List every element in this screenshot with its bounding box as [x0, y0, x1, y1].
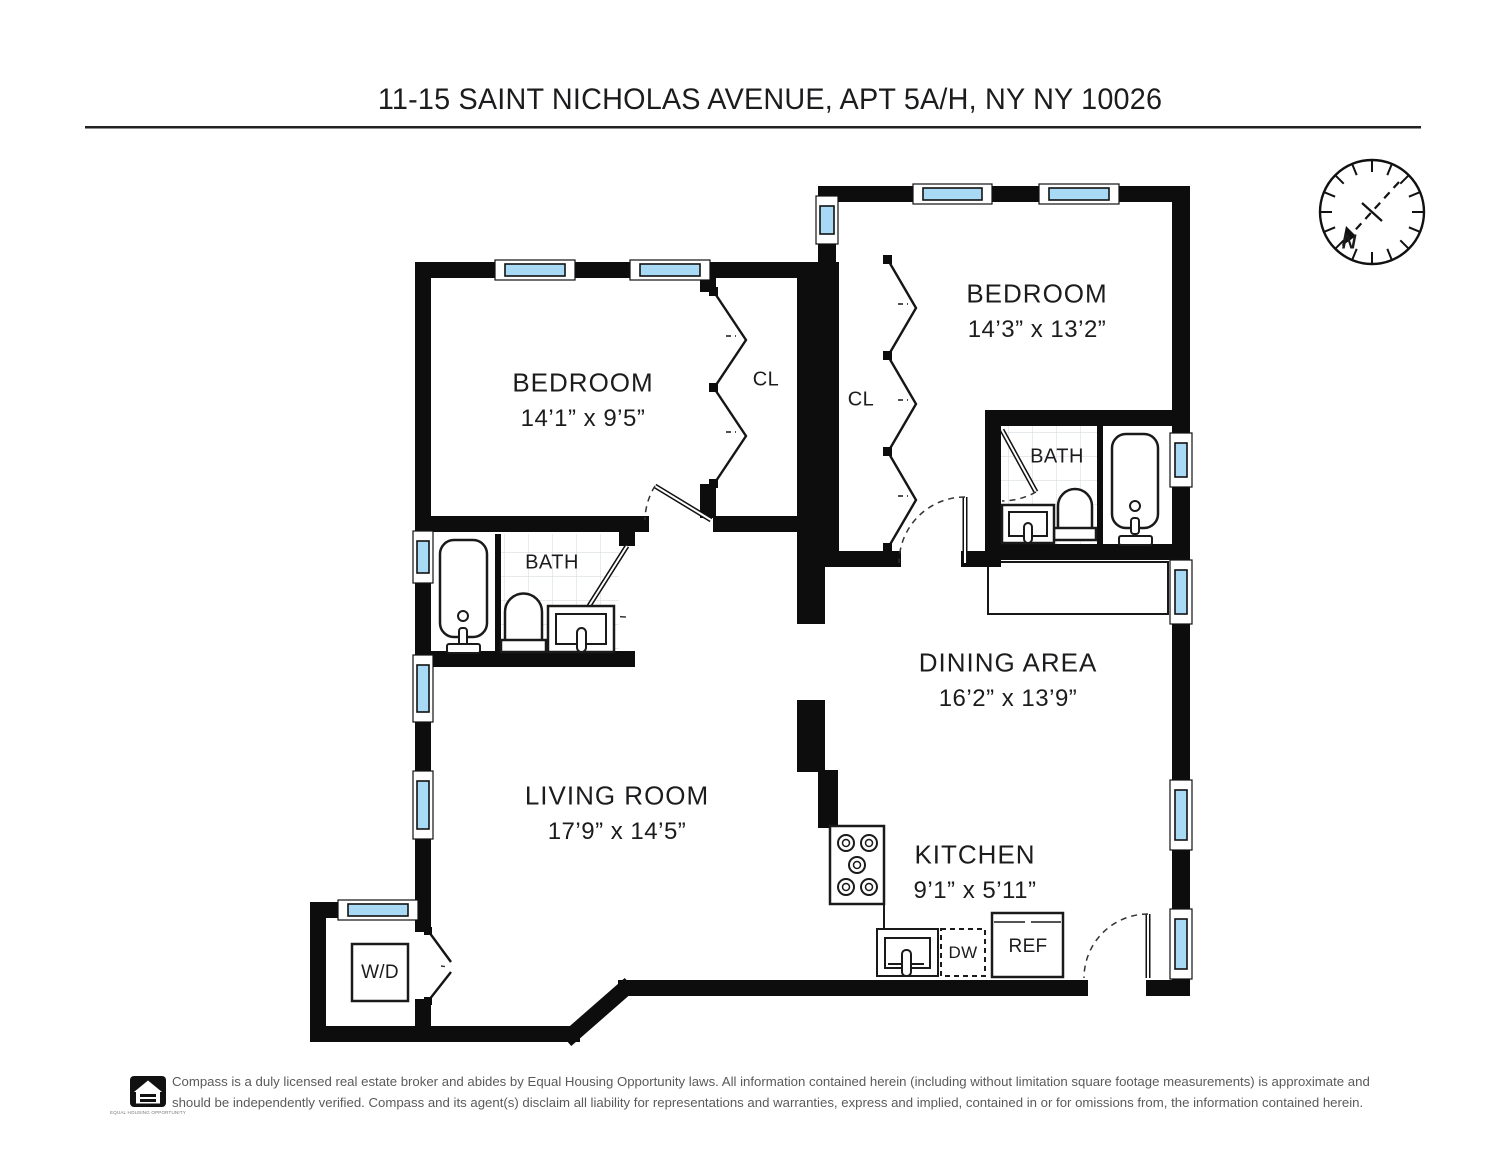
- entry-door: [1084, 914, 1148, 978]
- toilet-right-icon: [1054, 489, 1096, 540]
- room-dims-kitchen: 9’1” x 5’11”: [914, 877, 1037, 905]
- dining-closet-outline: [988, 562, 1168, 614]
- room-label-bedroom-left: BEDROOM: [512, 368, 653, 399]
- diagonal-wall: [566, 984, 630, 1040]
- window: [413, 531, 433, 583]
- room-label-kitchen: KITCHEN: [914, 840, 1035, 871]
- sink-right-icon: [1002, 505, 1054, 543]
- window: [1170, 560, 1192, 624]
- floor-plan-page: 11-15 SAINT NICHOLAS AVENUE, APT 5A/H, N…: [0, 0, 1500, 1159]
- room-label-bath-right: BATH: [1030, 446, 1084, 469]
- window: [413, 771, 433, 839]
- dishwasher-label: DW: [949, 943, 978, 963]
- room-label-living: LIVING ROOM: [525, 781, 709, 812]
- refrigerator-label: REF: [1009, 936, 1048, 958]
- window: [413, 655, 433, 722]
- window: [816, 196, 838, 244]
- compass-icon: [1320, 160, 1424, 264]
- window: [1170, 433, 1192, 487]
- room-label-dining: DINING AREA: [919, 648, 1098, 679]
- eho-caption: EQUAL HOUSING OPPORTUNITY: [110, 1110, 186, 1115]
- footer-disclaimer-line1: Compass is a duly licensed real estate b…: [172, 1074, 1370, 1089]
- closet-left-hinges: [709, 287, 718, 488]
- closet-middle-bifold-doors: [888, 260, 916, 548]
- room-dims-bedroom-left: 14’1” x 9’5”: [521, 405, 646, 433]
- bathtub-right-icon: [1112, 434, 1158, 545]
- compass-north-label: N: [1342, 232, 1356, 255]
- toilet-left-icon: [501, 594, 546, 653]
- equal-housing-logo: [130, 1076, 166, 1107]
- room-dims-bedroom-right: 14’3” x 13’2”: [968, 316, 1107, 344]
- page-title: 11-15 SAINT NICHOLAS AVENUE, APT 5A/H, N…: [378, 83, 1162, 117]
- title-rule: [85, 126, 1421, 129]
- window: [913, 184, 992, 204]
- laundry-bifold-door: [424, 927, 451, 1005]
- floor-plan-drawing: [0, 0, 1500, 1159]
- room-label-bath-left: BATH: [525, 552, 579, 575]
- room-label-bedroom-right: BEDROOM: [966, 279, 1107, 310]
- window: [495, 260, 575, 280]
- window: [338, 900, 418, 920]
- window: [1170, 780, 1192, 850]
- closet-label-middle: CL: [848, 389, 875, 412]
- window: [1039, 184, 1119, 204]
- sink-left-icon: [548, 606, 614, 652]
- hall-to-dining-door: [899, 497, 965, 563]
- room-dims-living: 17’9” x 14’5”: [548, 818, 687, 846]
- window: [1170, 909, 1192, 979]
- footer-disclaimer-line2: should be independently verified. Compas…: [172, 1095, 1363, 1110]
- window: [630, 260, 710, 280]
- bathtub-left-icon: [440, 540, 487, 653]
- closet-label-left: CL: [753, 369, 780, 392]
- washer-dryer-label: W/D: [361, 962, 399, 984]
- stove-icon: [830, 826, 884, 904]
- bath-left-divider: [495, 534, 501, 653]
- room-dims-dining: 16’2” x 13’9”: [939, 685, 1078, 713]
- closet-left-bifold-doors: [714, 292, 746, 484]
- bath-right-divider: [1097, 424, 1103, 546]
- closet-middle-hinges: [883, 255, 892, 552]
- kitchen-sink-icon: [877, 929, 938, 976]
